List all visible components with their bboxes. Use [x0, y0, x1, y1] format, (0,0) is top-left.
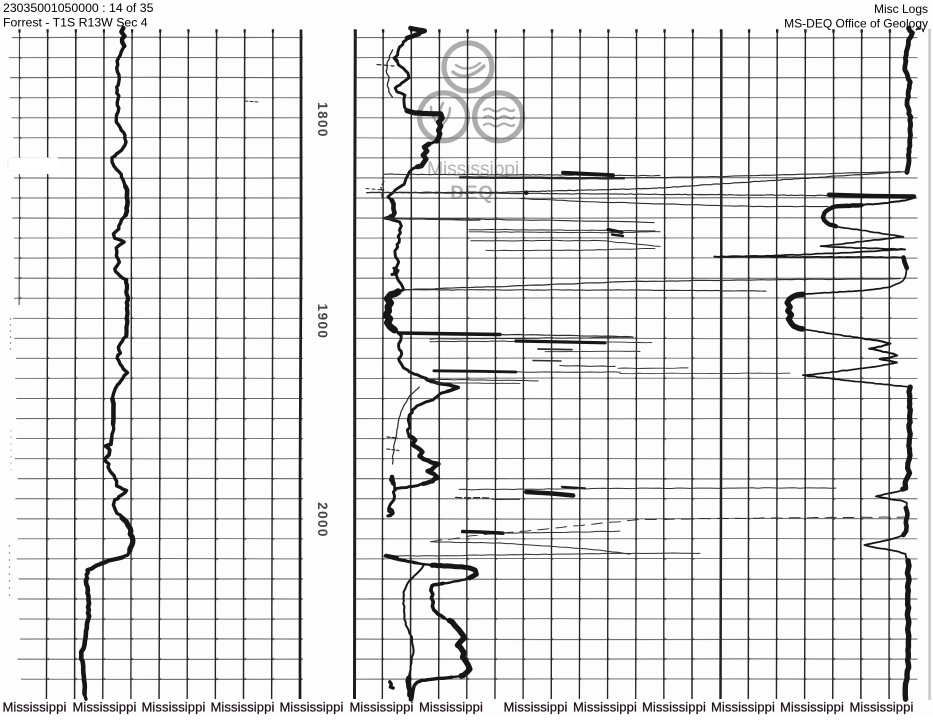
svg-text:Mississippi: Mississippi: [280, 700, 344, 715]
svg-text:Mississippi: Mississippi: [780, 700, 844, 715]
svg-text:Mississippi: Mississippi: [419, 700, 483, 715]
svg-text:Misc Logs: Misc Logs: [874, 2, 928, 16]
svg-text:2000: 2000: [315, 502, 330, 538]
svg-text:23035001050000 : 14 of 35: 23035001050000 : 14 of 35: [3, 1, 154, 15]
svg-text:1800: 1800: [315, 102, 330, 138]
svg-text:1900: 1900: [315, 304, 330, 340]
svg-text:Mississippi: Mississippi: [73, 700, 137, 715]
svg-text:Mississippi: Mississippi: [211, 700, 275, 715]
svg-text:Forrest - T1S R13W Sec 4: Forrest - T1S R13W Sec 4: [3, 16, 148, 30]
svg-text:Mississippi: Mississippi: [573, 700, 637, 715]
svg-text:Mississippi: Mississippi: [642, 700, 706, 715]
svg-text:Mississippi: Mississippi: [142, 700, 206, 715]
svg-text:Mississippi: Mississippi: [350, 700, 414, 715]
svg-text:Mississippi: Mississippi: [711, 700, 775, 715]
svg-text:Mississippi: Mississippi: [850, 700, 914, 715]
svg-text:Mississippi: Mississippi: [504, 700, 568, 715]
svg-text:Mississippi: Mississippi: [3, 700, 67, 715]
